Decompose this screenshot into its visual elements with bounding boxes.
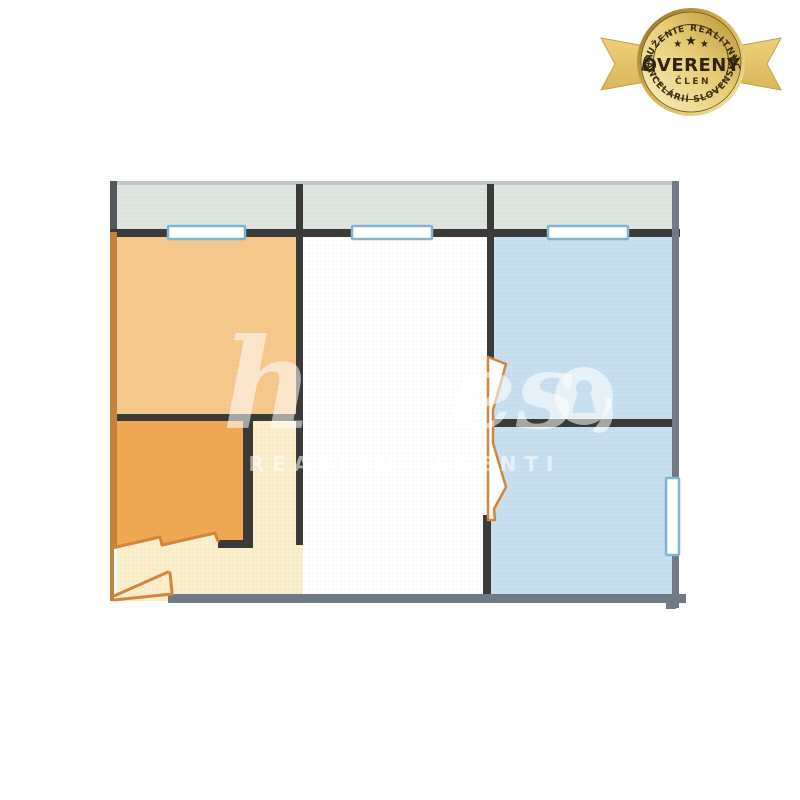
floorplan-page: h es REALITNÍ AGENTI <box>0 0 800 800</box>
verified-badge: ZDRUŽENIE REALITNÝCH KANCELÁRIÍ SLOVENSK… <box>593 0 793 130</box>
watermark-subtitle: REALITNÍ AGENTI <box>249 452 562 476</box>
window-center <box>352 226 432 239</box>
window-right <box>548 226 628 239</box>
badge-title: OVERENÝ <box>642 54 741 76</box>
window-side <box>666 478 679 555</box>
badge-subtitle: ČLEN <box>675 75 711 87</box>
window-left <box>168 226 245 239</box>
verified-badge-seal: ZDRUŽENIE REALITNÝCH KANCELÁRIÍ SLOVENSK… <box>593 0 793 130</box>
watermark-script-left: h <box>223 312 314 458</box>
